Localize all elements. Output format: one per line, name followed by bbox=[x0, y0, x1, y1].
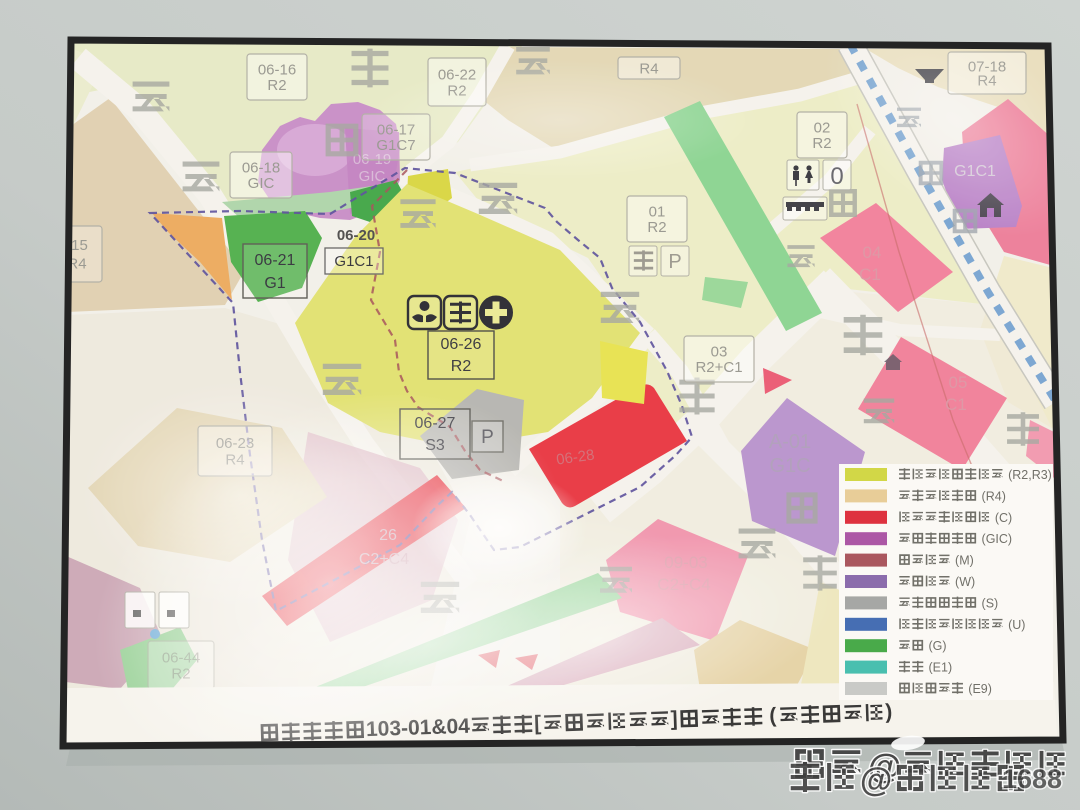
svg-text:@: @ bbox=[860, 761, 892, 798]
svg-text:1688: 1688 bbox=[1002, 764, 1062, 794]
